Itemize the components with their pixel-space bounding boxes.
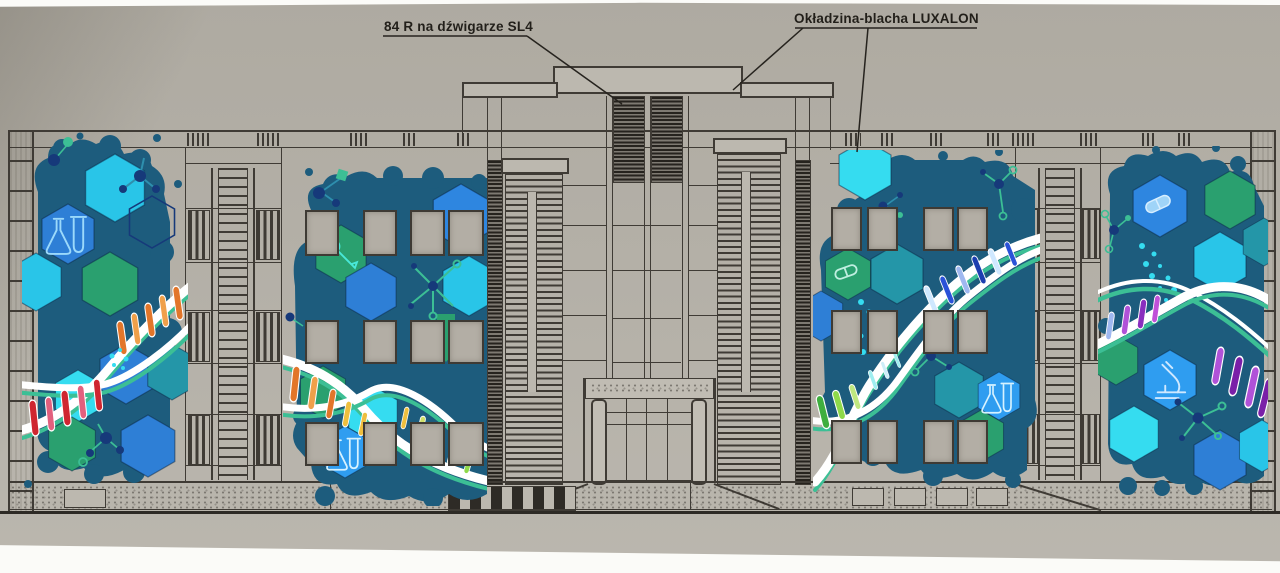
girder-annotation: 84 R na dźwigarze SL4 <box>384 19 533 34</box>
cladding-annotation: Okładzina-blacha LUXALON <box>794 11 979 26</box>
leader-lines <box>0 0 1280 573</box>
elevation-drawing: 84 R na dźwigarze SL4 Okładzina-blacha L… <box>0 0 1280 573</box>
